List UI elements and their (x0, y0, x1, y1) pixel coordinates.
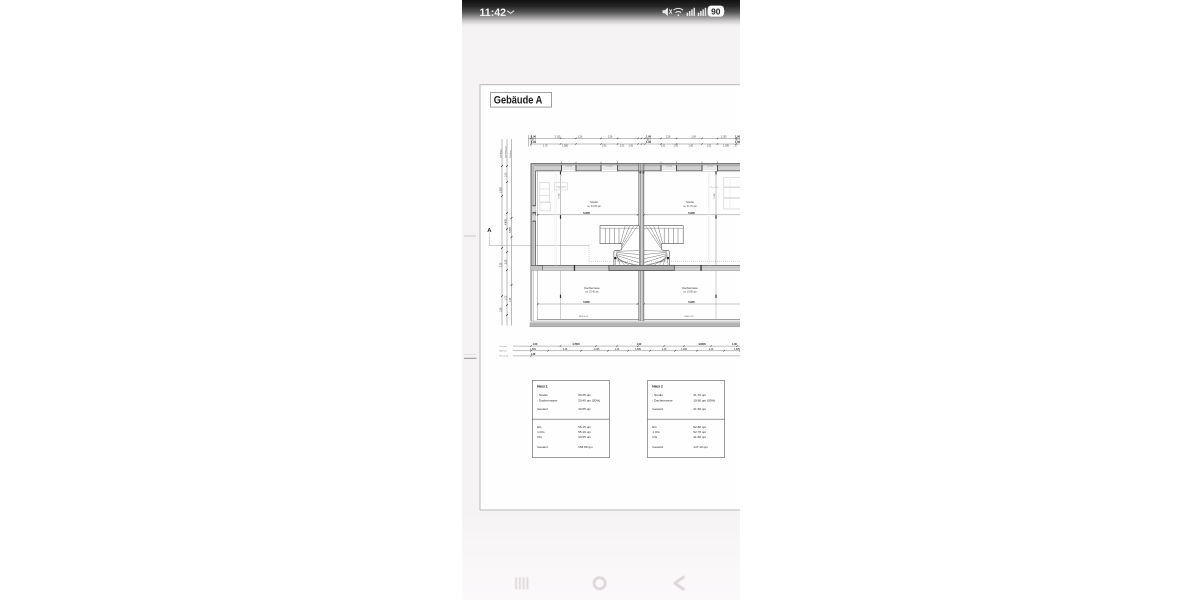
svg-text:2.26: 2.26 (662, 349, 667, 351)
svg-text:1.00: 1.00 (646, 135, 652, 139)
svg-text:1.01: 1.01 (620, 146, 625, 148)
svg-text:ca. 33.25 qm: ca. 33.25 qm (587, 205, 601, 208)
svg-text:43.55 qm: 43.55 qm (578, 407, 591, 411)
svg-text:Absturz: Absturz (500, 350, 507, 353)
svg-text:4.7845: 4.7845 (572, 343, 580, 346)
svg-text:55.10 qm: 55.10 qm (578, 430, 591, 434)
svg-text:31.70 qm: 31.70 qm (693, 393, 706, 397)
svg-text:OK FFB DG: OK FFB DG (505, 146, 507, 158)
svg-text:38.5: 38.5 (735, 140, 740, 142)
svg-text:1.26: 1.26 (510, 297, 512, 302)
svg-text:2.885: 2.885 (500, 186, 502, 192)
svg-text:2.26: 2.26 (666, 137, 671, 139)
svg-text:Studio: Studio (686, 200, 694, 204)
svg-text:1.96: 1.96 (500, 307, 502, 312)
svg-text:- Dachterrasse: - Dachterrasse (537, 398, 558, 402)
svg-text:Dachterrasse: Dachterrasse (584, 286, 600, 290)
svg-text:1.26: 1.26 (691, 137, 696, 139)
svg-text:153.80 qm: 153.80 qm (578, 445, 593, 449)
svg-text:38.5: 38.5 (531, 140, 536, 142)
svg-text:- Studio: - Studio (537, 393, 548, 397)
svg-text:3.25: 3.25 (500, 262, 502, 267)
svg-text:OG: OG (652, 435, 657, 439)
svg-text:147.10 qm: 147.10 qm (693, 445, 708, 449)
svg-text:5.845: 5.845 (688, 211, 695, 215)
svg-text:55.15 qm: 55.15 qm (578, 425, 591, 429)
svg-text:1.OG: 1.OG (537, 430, 545, 434)
svg-text:2.135: 2.135 (721, 137, 727, 139)
svg-text:1.00: 1.00 (735, 135, 741, 139)
svg-text:1.51: 1.51 (602, 146, 607, 148)
svg-text:ca. 20.40 qm: ca. 20.40 qm (585, 292, 598, 294)
svg-text:1.76: 1.76 (543, 146, 548, 148)
svg-text:1.51: 1.51 (661, 146, 666, 148)
svg-text:1.005: 1.005 (681, 349, 688, 351)
svg-text:5.845: 5.845 (583, 300, 590, 304)
svg-text:19.80 qm (50%): 19.80 qm (50%) (693, 398, 715, 402)
svg-text:38.5: 38.5 (646, 140, 651, 142)
svg-text:Haus 2: Haus 2 (652, 384, 663, 388)
svg-text:1.01 8/9: 1.01 8/9 (606, 166, 613, 168)
svg-text:1.00: 1.00 (637, 343, 642, 346)
svg-text:2.26: 2.26 (615, 349, 620, 351)
svg-text:2 Stg 18/25: 2 Stg 18/25 (556, 186, 565, 189)
svg-text:Fenster: Fenster (500, 345, 508, 348)
svg-text:EG: EG (537, 425, 542, 429)
svg-text:41.60 qm: 41.60 qm (693, 435, 706, 439)
svg-text:33.25 qm: 33.25 qm (578, 393, 591, 397)
svg-text:Gesamt: Gesamt (537, 407, 548, 411)
svg-text:BRH 0.90: BRH 0.90 (684, 316, 694, 318)
svg-text:52.80 qm: 52.80 qm (693, 425, 706, 429)
svg-text:2 Stg 18/25: 2 Stg 18/25 (709, 186, 718, 189)
svg-text:ca. 19.80 qm: ca. 19.80 qm (683, 292, 696, 294)
svg-text:52.70 qm: 52.70 qm (693, 430, 706, 434)
svg-text:1.00: 1.00 (533, 343, 538, 346)
svg-text:EG: EG (652, 425, 657, 429)
svg-text:1.885: 1.885 (635, 349, 642, 351)
svg-text:1.005: 1.005 (594, 349, 601, 351)
svg-text:1.OG: 1.OG (652, 430, 660, 434)
svg-text:4.8445: 4.8445 (698, 343, 706, 346)
svg-text:1.42: 1.42 (628, 146, 633, 148)
svg-text:ca. 31.70 qm: ca. 31.70 qm (683, 205, 697, 208)
svg-text:Gesamt: Gesamt (652, 445, 663, 449)
svg-text:2.135: 2.135 (555, 137, 561, 139)
svg-text:BRH 0.90: BRH 0.90 (579, 316, 589, 318)
svg-text:20.40 qm (50%): 20.40 qm (50%) (578, 398, 600, 402)
svg-text:1.385: 1.385 (562, 146, 568, 148)
svg-text:8.885: 8.885 (510, 226, 512, 232)
svg-text:2.26: 2.26 (608, 137, 613, 139)
svg-text:- Dachterrasse: - Dachterrasse (652, 398, 673, 402)
svg-text:1.00: 1.00 (505, 172, 507, 177)
svg-text:1.51: 1.51 (707, 146, 712, 148)
svg-text:1.01 8/9: 1.01 8/9 (707, 166, 714, 168)
svg-text:5.845: 5.845 (583, 211, 590, 215)
svg-text:Rohbau: Rohbau (510, 150, 512, 158)
svg-text:1.01: 1.01 (673, 146, 678, 148)
svg-text:43.55 qm: 43.55 qm (578, 435, 591, 439)
svg-text:2.26: 2.26 (505, 259, 507, 264)
svg-text:Gesamt: Gesamt (652, 407, 663, 411)
svg-text:1.01 8/9: 1.01 8/9 (666, 166, 673, 168)
svg-text:Brüstung: Brüstung (500, 355, 510, 358)
svg-text:2.26: 2.26 (709, 349, 714, 351)
svg-text:11:42: 11:42 (480, 7, 507, 19)
svg-text:1.01 8/9: 1.01 8/9 (566, 166, 573, 168)
svg-text:90: 90 (711, 6, 721, 16)
svg-text:1.00: 1.00 (505, 295, 507, 300)
svg-text:Gebäude A: Gebäude A (494, 95, 543, 107)
svg-text:1.385: 1.385 (723, 146, 729, 148)
svg-text:- Studio: - Studio (652, 393, 663, 397)
svg-text:Haus 1: Haus 1 (537, 384, 548, 388)
svg-text:41.60 qm: 41.60 qm (693, 407, 706, 411)
svg-text:1.00: 1.00 (732, 343, 737, 346)
svg-text:5.845: 5.845 (688, 300, 695, 304)
svg-text:5.005: 5.005 (714, 192, 716, 198)
svg-text:1.885: 1.885 (734, 349, 741, 351)
svg-text:4.485: 4.485 (505, 218, 507, 224)
svg-text:Studio: Studio (590, 200, 598, 204)
svg-text:Dachterrasse: Dachterrasse (682, 286, 698, 290)
svg-text:2.26: 2.26 (563, 349, 568, 351)
svg-text:5.005: 5.005 (559, 192, 561, 198)
svg-text:OK Attika: OK Attika (499, 148, 502, 158)
svg-text:1.26: 1.26 (578, 137, 583, 139)
svg-text:Gesamt: Gesamt (537, 445, 548, 449)
svg-text:OG: OG (537, 435, 542, 439)
svg-text:1.42: 1.42 (688, 146, 693, 148)
